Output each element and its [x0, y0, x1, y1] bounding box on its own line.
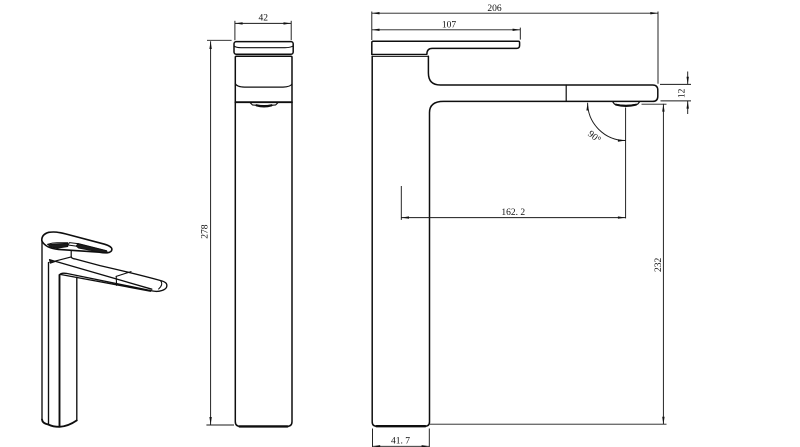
svg-text:232: 232 — [654, 257, 664, 272]
svg-text:278: 278 — [200, 224, 210, 239]
svg-text:162. 2: 162. 2 — [501, 208, 525, 218]
svg-text:107: 107 — [442, 21, 457, 31]
svg-text:206: 206 — [487, 4, 502, 14]
svg-text:42: 42 — [259, 14, 269, 24]
svg-text:12: 12 — [677, 88, 687, 98]
svg-text:41. 7: 41. 7 — [391, 437, 410, 447]
